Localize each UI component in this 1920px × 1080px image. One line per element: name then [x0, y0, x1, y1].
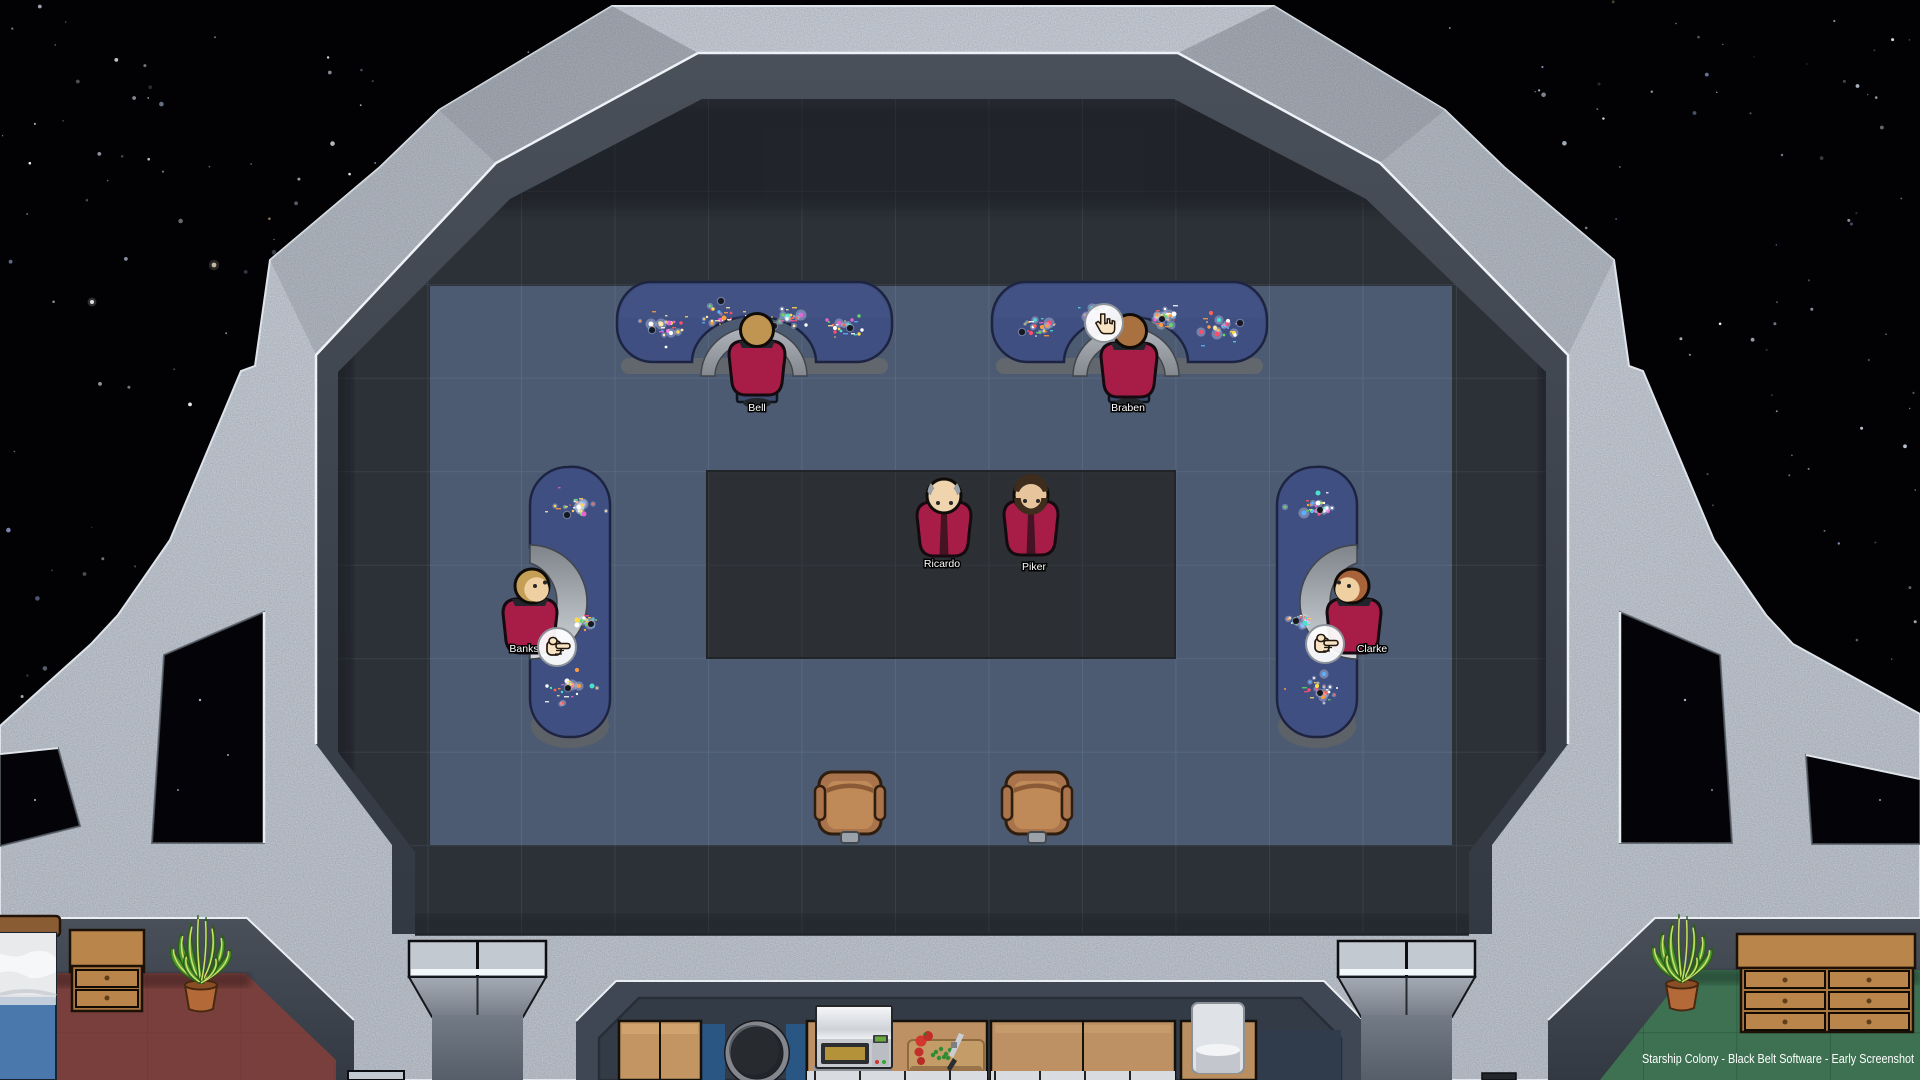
svg-text:Starship Colony - Black Belt S: Starship Colony - Black Belt Software - …: [1642, 1051, 1914, 1066]
svg-text:Piker: Piker: [1022, 561, 1046, 573]
svg-text:Bell: Bell: [748, 402, 766, 414]
svg-text:Ricardo: Ricardo: [924, 558, 960, 570]
svg-text:Clarke: Clarke: [1357, 643, 1388, 655]
svg-text:Braben: Braben: [1111, 402, 1145, 414]
svg-text:Banks: Banks: [509, 643, 538, 655]
